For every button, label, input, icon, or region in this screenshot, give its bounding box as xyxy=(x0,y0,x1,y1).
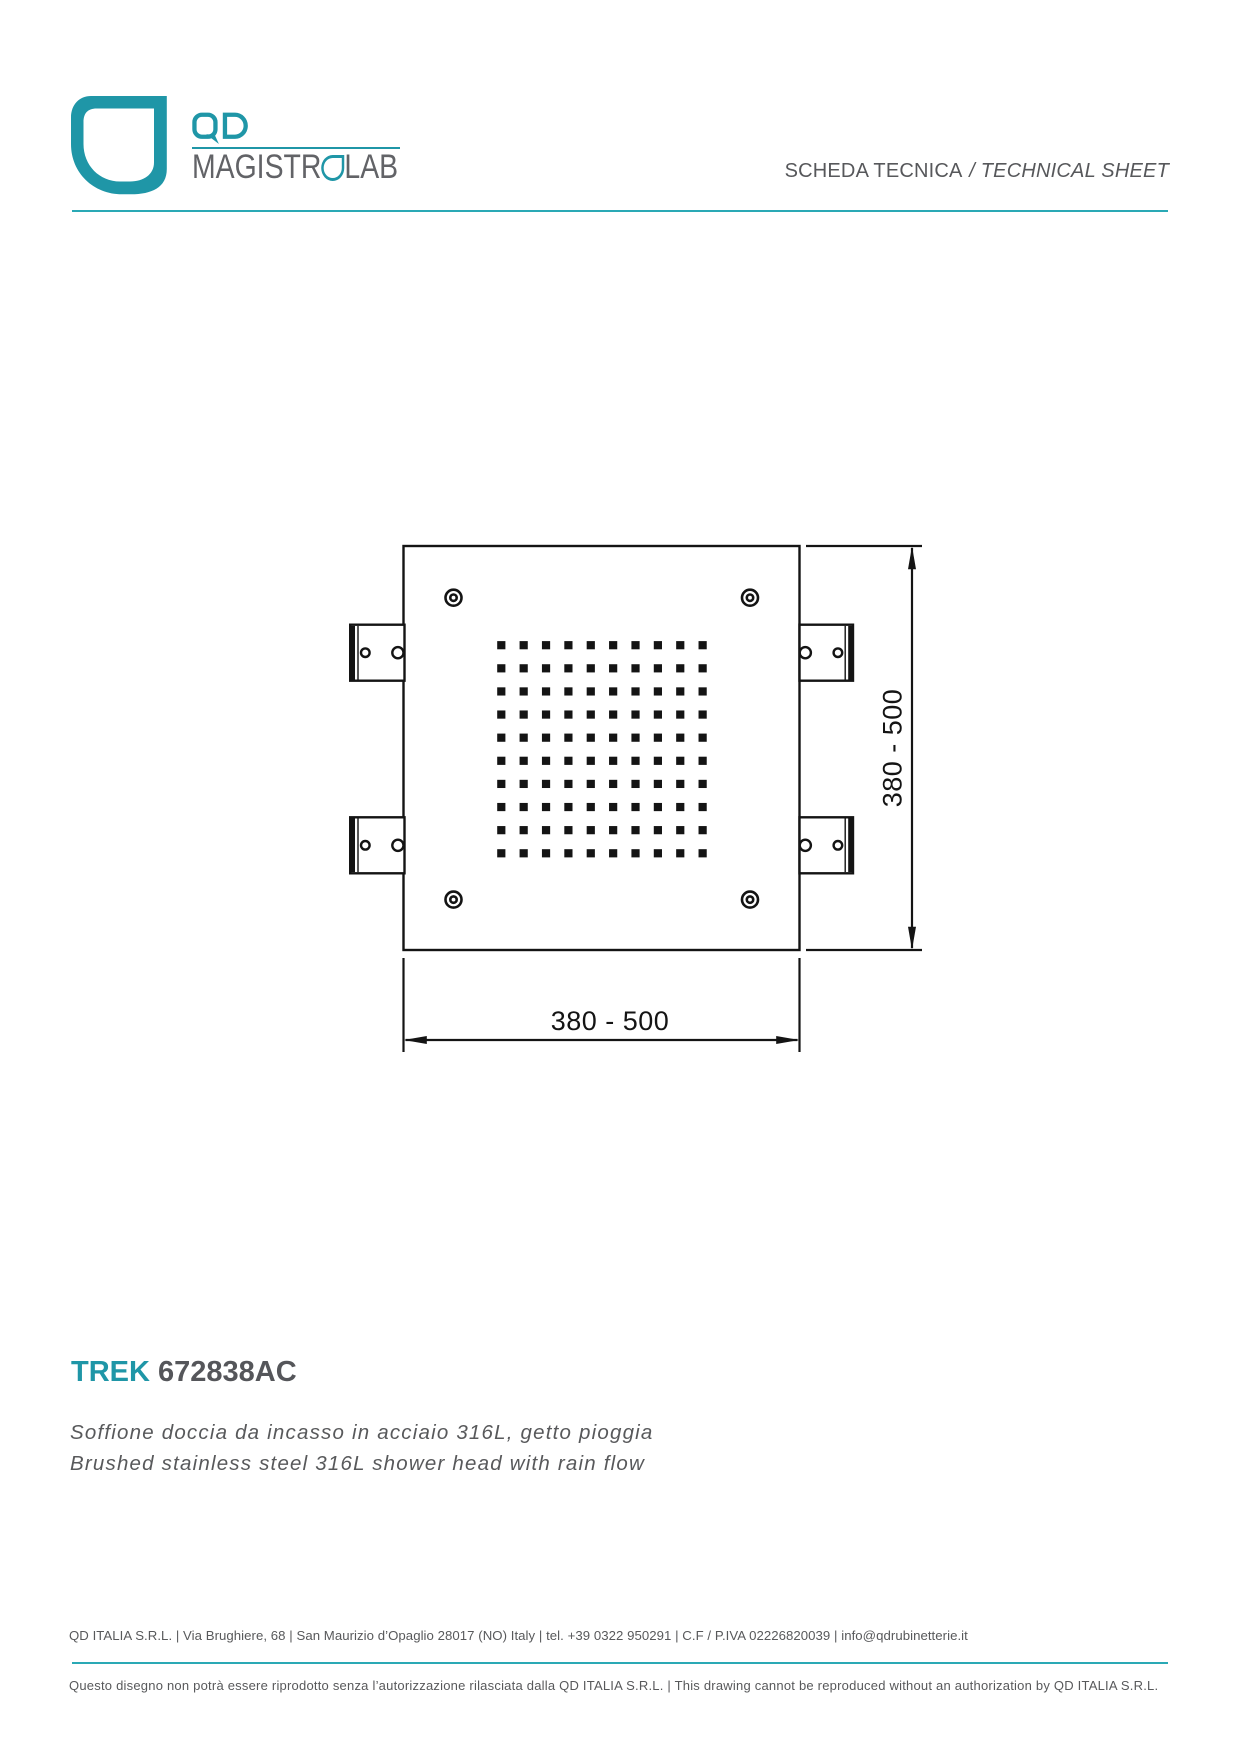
svg-text:380 - 500: 380 - 500 xyxy=(551,1006,670,1036)
svg-text:380 - 500: 380 - 500 xyxy=(878,689,908,808)
